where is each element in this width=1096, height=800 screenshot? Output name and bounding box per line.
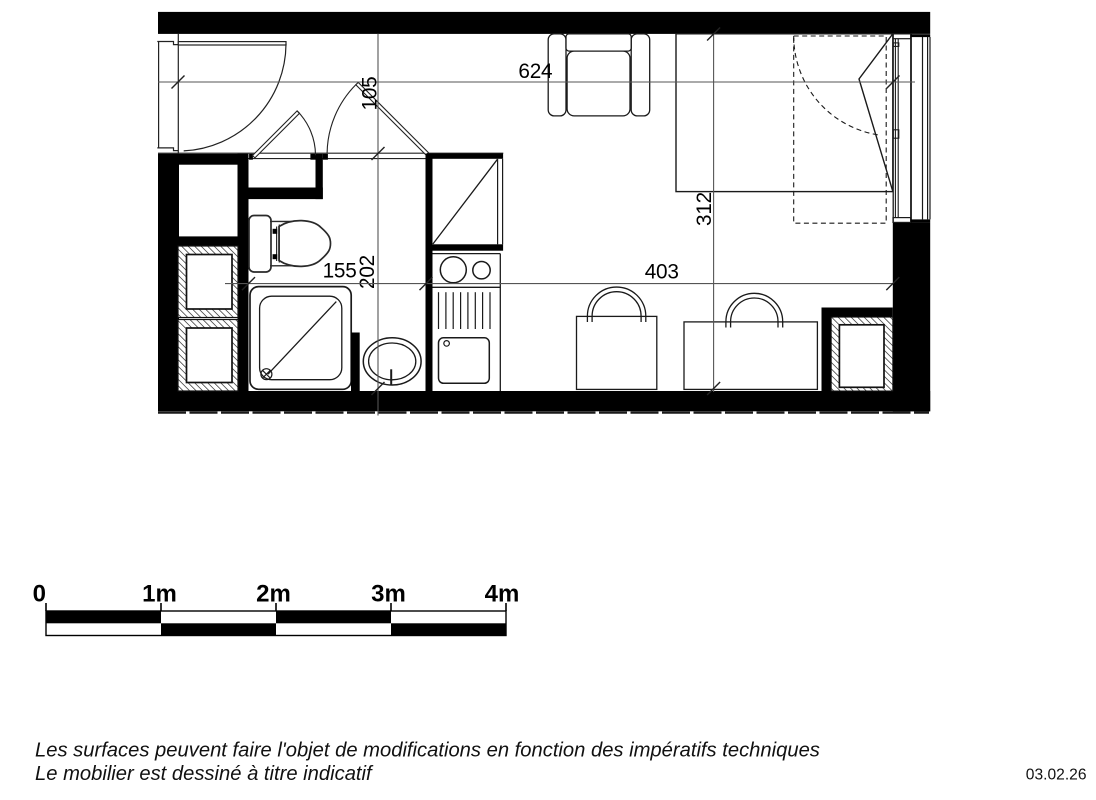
svg-text:624: 624 bbox=[518, 60, 552, 83]
svg-text:2m: 2m bbox=[256, 581, 291, 608]
svg-text:03.02.26: 03.02.26 bbox=[1026, 767, 1087, 784]
svg-text:105: 105 bbox=[359, 77, 382, 111]
svg-text:Le mobilier est dessiné à titr: Le mobilier est dessiné à titre indicati… bbox=[35, 763, 374, 785]
svg-text:3m: 3m bbox=[371, 581, 406, 608]
svg-text:312: 312 bbox=[693, 192, 716, 226]
svg-text:0: 0 bbox=[33, 581, 46, 608]
svg-text:Les surfaces peuvent faire l'o: Les surfaces peuvent faire l'objet de mo… bbox=[35, 740, 820, 762]
svg-text:155: 155 bbox=[323, 260, 357, 283]
svg-text:1m: 1m bbox=[142, 581, 177, 608]
svg-text:4m: 4m bbox=[485, 581, 520, 608]
svg-text:403: 403 bbox=[645, 261, 679, 284]
